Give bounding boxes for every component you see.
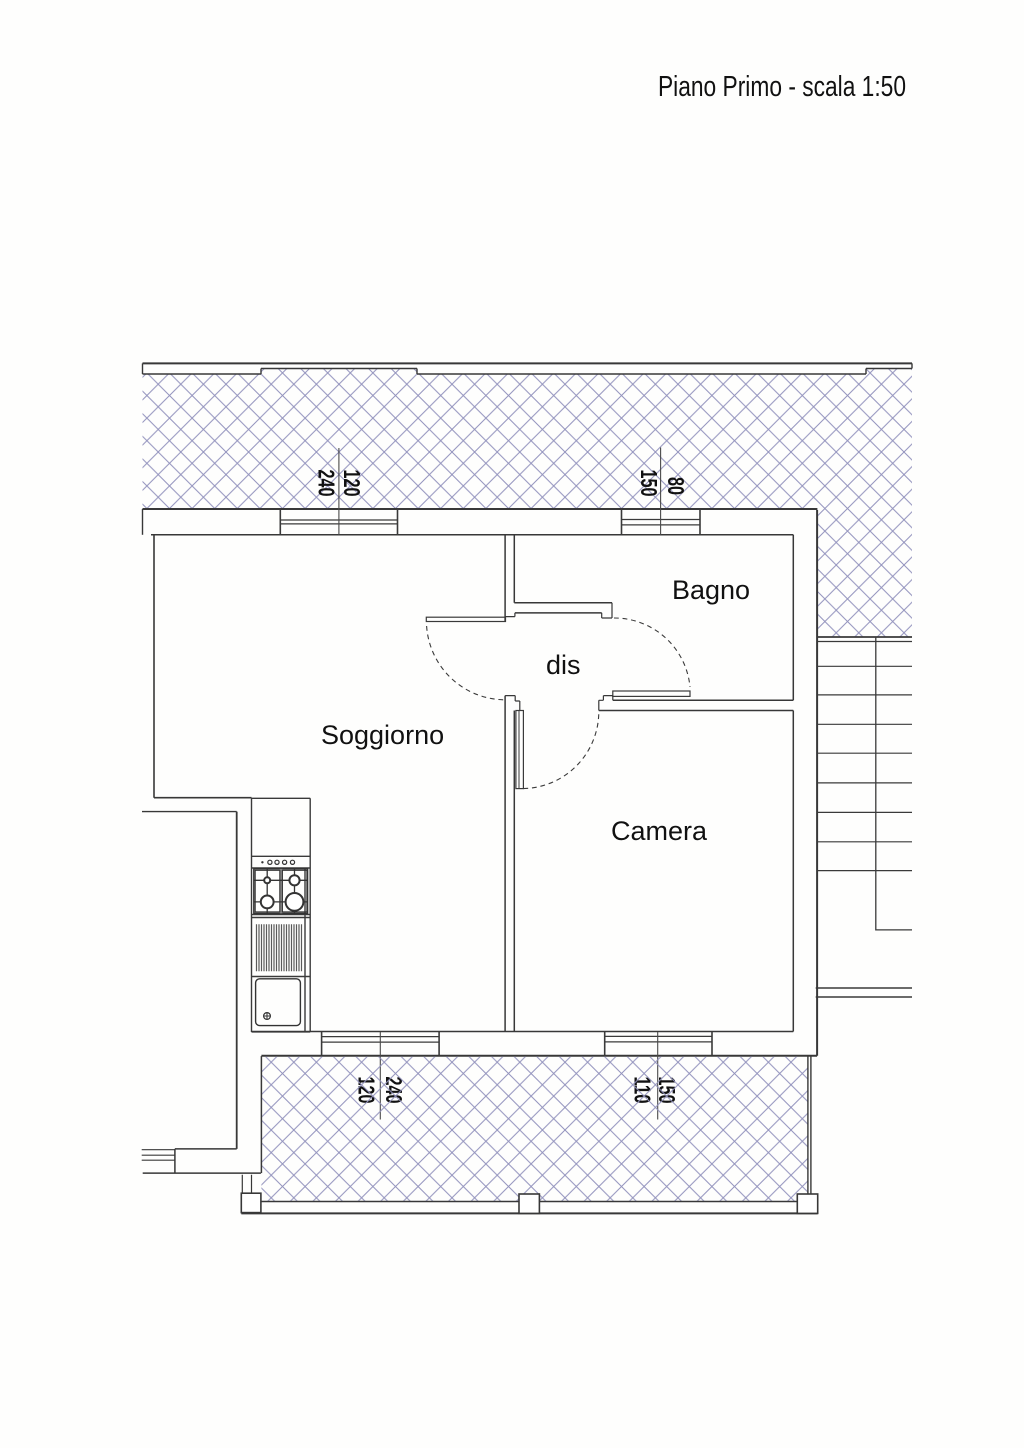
- svg-text:150: 150: [636, 470, 662, 497]
- svg-text:Piano Primo - scala 1:50: Piano Primo - scala 1:50: [658, 71, 906, 103]
- svg-text:120: 120: [339, 470, 365, 497]
- svg-text:Bagno: Bagno: [672, 575, 750, 605]
- svg-text:Camera: Camera: [611, 816, 708, 846]
- svg-text:240: 240: [314, 470, 340, 497]
- svg-text:dis: dis: [546, 650, 581, 680]
- svg-text:80: 80: [663, 477, 689, 495]
- svg-text:Soggiorno: Soggiorno: [321, 720, 444, 750]
